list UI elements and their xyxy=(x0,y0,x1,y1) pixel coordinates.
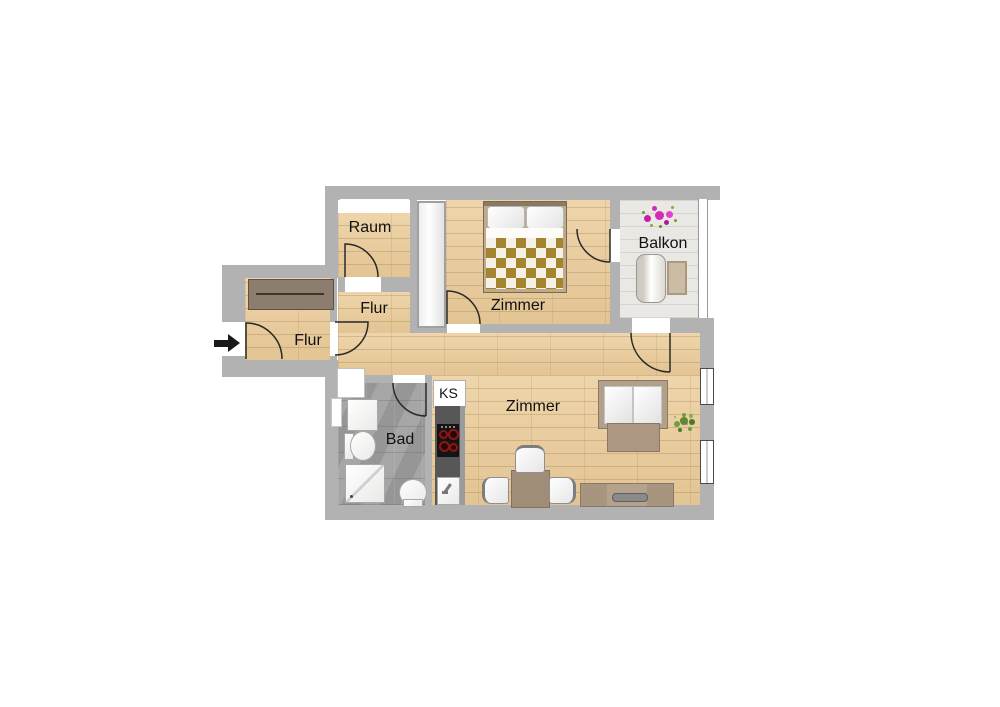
wall-raum-a xyxy=(338,277,345,292)
sideboard-left-block xyxy=(581,484,607,506)
wall-top xyxy=(325,186,720,200)
sofa xyxy=(598,380,668,429)
dining-chair-top xyxy=(515,445,545,473)
dining-chair-left xyxy=(482,477,509,504)
balcony-chair xyxy=(636,254,666,303)
living-window-lower xyxy=(700,440,714,484)
wall-entry-left-a xyxy=(222,278,245,322)
pillow-left xyxy=(487,206,525,229)
balcony-flowers-icon xyxy=(655,211,664,220)
bed-blanket xyxy=(486,238,563,289)
corridor-floor xyxy=(338,333,700,375)
entrance-arrow-icon xyxy=(214,340,229,347)
bed xyxy=(483,201,567,293)
raum-window xyxy=(340,199,409,213)
soundbar-icon xyxy=(612,493,648,502)
bed-sheet-band xyxy=(486,228,563,238)
wall-bedroom-right-a xyxy=(610,199,620,229)
wall-balcony-bottom-b xyxy=(670,318,700,333)
label-flur-entry: Flur xyxy=(268,332,348,350)
entry-sideboard xyxy=(248,279,334,310)
wall-balcony-bottom-a xyxy=(620,318,632,333)
label-balcony: Balkon xyxy=(623,235,703,253)
entrance-arrow-head xyxy=(228,334,240,352)
coffee-table xyxy=(607,423,660,452)
burner-icon xyxy=(449,443,458,452)
balcony-table xyxy=(667,261,687,295)
shower-drain xyxy=(350,495,353,498)
sofa-cushion-left xyxy=(604,386,633,424)
kitchen-counter-edge xyxy=(460,406,465,505)
label-flur-upper: Flur xyxy=(334,300,414,318)
label-living-room: Zimmer xyxy=(493,398,573,416)
kitchen-sink xyxy=(437,477,460,505)
dining-chair-right xyxy=(549,477,576,504)
wall-bedroom-right-b xyxy=(610,262,620,330)
stove-icon xyxy=(437,424,459,457)
living-plant-icon xyxy=(680,417,688,425)
wall-entry-bottom xyxy=(222,360,338,377)
stove-knobs xyxy=(441,426,443,428)
bath-sink xyxy=(347,399,378,431)
label-bathroom: Bad xyxy=(360,431,440,449)
burner-icon xyxy=(448,429,459,440)
tv-sideboard xyxy=(580,483,674,507)
burner-icon xyxy=(439,430,448,439)
faucet-base xyxy=(442,491,448,494)
sofa-cushion-right xyxy=(633,386,662,424)
wall-bedroom-bottom xyxy=(480,324,620,333)
label-bedroom: Zimmer xyxy=(478,297,558,315)
floor-plan: KS xyxy=(0,0,1000,707)
sideboard-right-block xyxy=(647,484,673,506)
shaft-box xyxy=(337,368,365,398)
toilet2-base xyxy=(403,499,423,507)
sideboard-groove xyxy=(256,293,324,295)
living-window-upper xyxy=(700,368,714,405)
wall-stub-lower xyxy=(330,356,337,377)
label-raum: Raum xyxy=(330,219,410,237)
wall-niche xyxy=(331,398,342,427)
wall-entry-top xyxy=(222,265,338,278)
dining-table xyxy=(511,470,550,508)
pillow-right xyxy=(526,206,564,229)
balcony-railing xyxy=(698,199,708,318)
shower xyxy=(345,464,385,503)
label-kitchenette: KS xyxy=(433,385,464,401)
wardrobe xyxy=(417,201,446,328)
